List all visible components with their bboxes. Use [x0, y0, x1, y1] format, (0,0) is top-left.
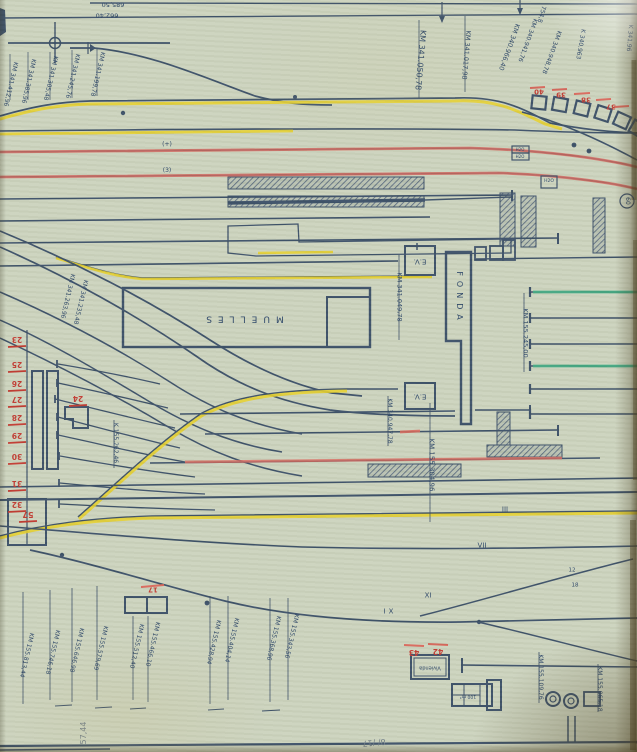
- km-label: 40: [534, 88, 544, 95]
- km-label: KM 341.385,96: [20, 58, 36, 104]
- km-label: 685,50: [102, 1, 125, 8]
- label-layer: 685,50662,40KM 341.412,96KM 341.385,96KM…: [0, 0, 637, 752]
- km-label: KM 155.304,96: [428, 439, 435, 492]
- track-number: 57: [22, 510, 33, 518]
- km-label: K 340.963: [574, 28, 585, 59]
- switch-number: 18: [572, 583, 579, 589]
- roman-numeral: III: [502, 507, 508, 514]
- km-label: 754,8: [536, 5, 546, 23]
- km-label: 39: [556, 91, 566, 98]
- km-label: 37: [606, 103, 616, 110]
- building-label-tank: 100 m³: [460, 693, 476, 698]
- km-label: KM 155.746,18: [44, 629, 60, 675]
- roman-numeral: XI: [425, 593, 432, 600]
- track-number: 42: [433, 647, 443, 655]
- km-label: KM 155.466,10: [144, 621, 160, 667]
- km-label: KM 341.245,76: [64, 53, 80, 99]
- building-label-vivienda: Vivienda: [419, 665, 441, 670]
- roman-numeral: VII: [478, 543, 487, 550]
- km-label: 60: [624, 197, 630, 205]
- km-label: KM 341.263,96: [59, 273, 75, 319]
- track-number: 26: [12, 379, 22, 387]
- km-label: KM 155.245,00: [522, 308, 529, 357]
- km-label: KM 341.049,78: [396, 272, 403, 321]
- roman-numeral: IX: [384, 609, 397, 616]
- track-number: 31: [12, 479, 22, 487]
- km-label: KM 340.966,40: [498, 23, 521, 71]
- handwriting: 57,44: [80, 722, 88, 745]
- km-label: KM 155.579,69: [92, 625, 108, 671]
- km-label: KM 155.646,98: [68, 627, 84, 673]
- km-label: KM 341.017,98: [461, 30, 472, 80]
- km-label: KM 341.412,96: [2, 61, 18, 107]
- km-label: KM 155.065,18: [596, 666, 602, 711]
- track-number: 17: [148, 586, 158, 593]
- km-label: KM 155.343,56: [283, 613, 299, 659]
- km-label: (3): [163, 168, 172, 174]
- km-label: (+): [162, 142, 172, 148]
- track-number: 23: [12, 335, 22, 343]
- scanned-track-plan: 685,50662,40KM 341.412,96KM 341.385,96KM…: [0, 0, 637, 752]
- building-label-fonda: FONDA: [455, 271, 463, 324]
- track-number: 30: [12, 452, 22, 460]
- km-label: KM 341.199,78: [89, 51, 105, 97]
- km-label: H2O: [516, 155, 525, 159]
- building-label-ev: E.V.: [414, 393, 427, 400]
- km-label: KM 155.428,94: [205, 619, 221, 665]
- track-number: 24: [73, 394, 83, 402]
- building-label-ev: E.V.: [414, 258, 427, 265]
- building-label-muelles: MUELLES: [200, 314, 283, 323]
- km-label: KM 155.368,96: [265, 615, 281, 661]
- km-label: H2O: [516, 148, 525, 152]
- km-label: KM 155.404,14: [223, 617, 239, 663]
- track-number: 29: [12, 431, 22, 439]
- track-number: 28: [12, 413, 22, 421]
- track-number: 43: [409, 648, 419, 656]
- km-label: H2O: [544, 180, 554, 185]
- km-label: KM 155.109,76: [537, 654, 543, 699]
- km-label: KM 341.050,78: [413, 30, 426, 91]
- km-label: KM 341.235,48: [72, 279, 88, 325]
- km-label: K 341.96: [625, 24, 633, 51]
- km-label: KM 340.947,78: [386, 398, 392, 443]
- switch-number: 12: [569, 568, 576, 574]
- track-number: 25: [12, 360, 22, 368]
- km-label: KM 155.813,44: [18, 632, 34, 678]
- km-label: 38: [581, 96, 591, 103]
- track-number: 32: [12, 500, 22, 508]
- handwriting: 8/ /17: [362, 737, 386, 747]
- track-number: 27: [12, 395, 22, 403]
- km-label: 662,40: [96, 12, 119, 19]
- km-label: KM 155.512,40: [128, 623, 144, 669]
- km-label: KM 340.948,78: [540, 30, 561, 75]
- km-label: K 155.262,46: [112, 423, 118, 463]
- km-label: KM 341.305,48: [42, 55, 58, 101]
